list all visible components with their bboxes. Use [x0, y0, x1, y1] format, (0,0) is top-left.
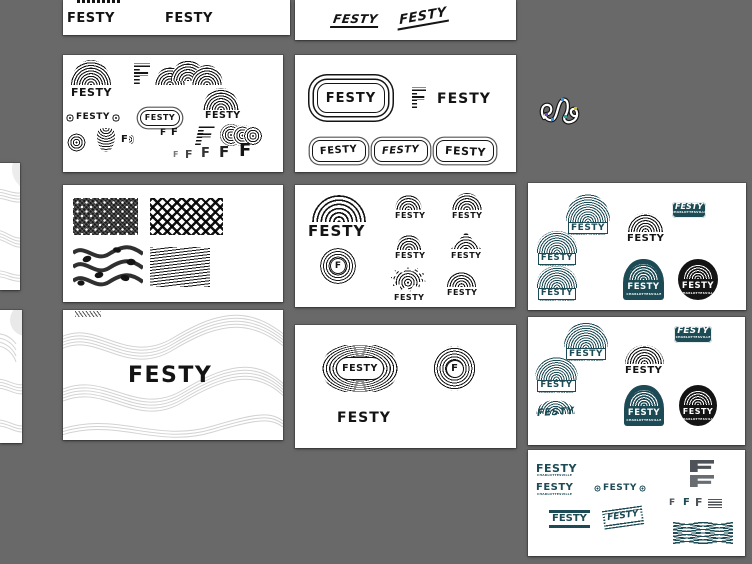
rainbow-arch-icon	[203, 88, 239, 110]
rainbow-arch-icon	[71, 60, 111, 85]
zigzag-pattern-tile[interactable]	[150, 198, 223, 235]
artboard-wave-field[interactable]: FESTY	[63, 310, 283, 440]
artboard-badge-lockups[interactable]: FESTY FESTY FESTY FESTY FESTY	[295, 55, 516, 172]
festy-racetrack-logo[interactable]: FESTY	[322, 345, 398, 392]
artboard-teal-wordmarks[interactable]: FESTY CHARLOTTESVILLE FESTY CHARLOTTESVI…	[528, 450, 745, 556]
artboard-patterns[interactable]	[63, 185, 283, 302]
festy-slant-stripe-badge[interactable]: FESTY	[602, 504, 644, 529]
festy-wordmark: FESTY	[71, 87, 112, 98]
artboard-wave-partial-top[interactable]	[0, 163, 20, 290]
starburst-icon	[390, 267, 426, 293]
festy-pill-badge[interactable]: FESTY	[140, 110, 180, 126]
artboard-teal-badges-1[interactable]: FESTY CHARLOTTESVILLE FESTY CHARLOTTESVI…	[528, 183, 746, 310]
clipped-logo-sliver	[77, 0, 121, 3]
black-circle-rainbow-badge[interactable]: FESTY CHARLOTTESVILLE	[679, 385, 717, 426]
teal-arch-badge[interactable]: FESTY CHARLOTTESVILLE	[535, 357, 578, 397]
swirl-icon	[112, 114, 120, 122]
festy-wordmark[interactable]: FESTY	[437, 92, 491, 106]
teal-solid-arch-badge[interactable]: FESTY CHARLOTTESVILLE	[624, 385, 664, 426]
festy-script-slanted-logo[interactable]: FESTY	[396, 6, 450, 31]
design-canvas[interactable]: FESTY FESTY FESTY FESTY FESTY	[0, 0, 752, 564]
teal-arch-badge[interactable]: FESTY CHARLOTTESVILLE	[536, 266, 578, 305]
festy-bars-lockup[interactable]: FESTY	[549, 510, 590, 528]
swirl-icon	[639, 485, 646, 492]
festy-wavy-badge[interactable]: FESTY	[374, 140, 428, 162]
wave-eyes-pattern-tile[interactable]	[73, 245, 143, 287]
artboard-script-wordmarks[interactable]: FESTY FESTY	[295, 0, 516, 40]
striped-f-icon[interactable]	[134, 63, 150, 84]
hatch-fragment	[75, 311, 101, 317]
festy-outline-badge[interactable]: FESTY	[317, 83, 385, 113]
festy-wordmark-large[interactable]: FESTY	[128, 365, 212, 387]
striped-block	[708, 498, 722, 508]
festy-wordmark[interactable]: FESTY	[165, 12, 213, 25]
f-letter[interactable]: F	[171, 128, 178, 138]
triangle-icon	[451, 232, 481, 249]
artboard-teal-badges-2[interactable]: FESTY CHARLOTTESVILLE FESTY CHARLOTTESVI…	[528, 317, 745, 445]
swirl-icon	[594, 485, 601, 492]
swirl-icon	[66, 114, 74, 122]
artboard-wave-partial-bottom[interactable]	[0, 310, 22, 443]
teal-solid-arch-badge[interactable]: FESTY CHARLOTTESVILLE	[623, 259, 664, 300]
festy-wordmark[interactable]: FESTY	[67, 12, 115, 25]
artboard-arch-marks[interactable]: FESTY F FESTY FESTY FESTY FESTY FESTY FE…	[295, 185, 515, 307]
dot-grid-pattern-tile[interactable]	[73, 198, 138, 235]
black-circle-rainbow-badge[interactable]: FESTY CHARLOTTESVILLE	[678, 259, 718, 300]
festy-teal-pill[interactable]: FESTY CHARLOTTESVILLE	[672, 202, 706, 218]
gray-wave-lines	[0, 310, 22, 443]
artboard-wordmarks-cropped[interactable]: FESTY FESTY	[63, 0, 290, 35]
festy-wavy-badge[interactable]: FESTY	[436, 140, 494, 162]
festy-with-swirls-teal[interactable]: FESTY	[594, 484, 646, 493]
spiral-icon[interactable]	[67, 133, 86, 152]
f-ring-seal[interactable]: F	[320, 248, 356, 284]
diagonal-lines-pattern-tile[interactable]	[150, 247, 210, 287]
f-ring-seal[interactable]: F	[433, 346, 476, 391]
festy-script-logo[interactable]: FESTY	[331, 13, 379, 28]
artboard-logo-sketches-black[interactable]: FESTY FESTY FESTY FESTY F F F	[63, 55, 283, 172]
selected-squiggle-path[interactable]	[538, 88, 586, 132]
festy-wordmark: FESTY	[205, 111, 241, 121]
festy-teal-pill[interactable]: FESTY CHARLOTTESVILLE	[674, 326, 712, 343]
striped-u-icon[interactable]	[97, 128, 115, 152]
gray-wave-lines	[0, 163, 20, 290]
f-letter[interactable]: F	[160, 129, 167, 138]
festy-wordmark[interactable]: FESTY	[337, 411, 391, 425]
artboard-racetrack-logo[interactable]: FESTY F FESTY	[295, 325, 516, 448]
striped-f-icon[interactable]	[412, 87, 426, 108]
striped-f-italic-icon[interactable]	[195, 125, 215, 145]
woven-lines-tile[interactable]	[673, 522, 733, 544]
teal-arch-badge[interactable]: FESTY CHARLOTTESVILLE	[536, 231, 578, 270]
festy-wavy-badge[interactable]: FESTY	[312, 140, 366, 162]
festy-with-swirls[interactable]: FESTY	[66, 113, 120, 122]
